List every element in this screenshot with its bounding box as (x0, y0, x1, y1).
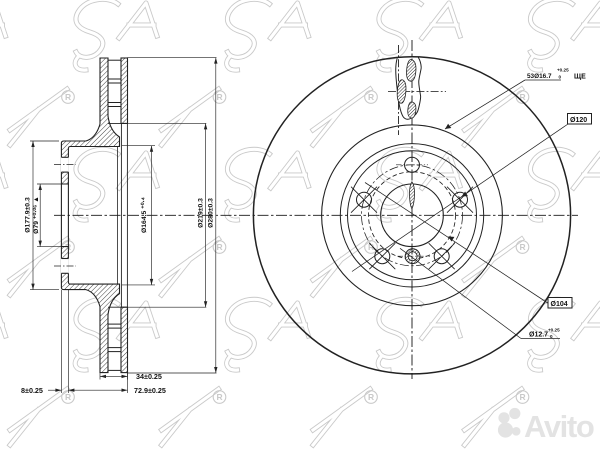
svg-text:+0.25: +0.25 (557, 68, 569, 73)
svg-text:Ø104: Ø104 (551, 301, 568, 308)
svg-text:72.9±0.25: 72.9±0.25 (134, 386, 166, 395)
svg-text:Ø280±0.3: Ø280±0.3 (208, 198, 215, 228)
svg-text:Ø219±0.3: Ø219±0.3 (197, 198, 204, 228)
svg-text:8±0.25: 8±0.25 (21, 386, 43, 395)
svg-text:34±0.25: 34±0.25 (136, 372, 162, 381)
svg-text:ЩЕ: ЩЕ (574, 74, 586, 81)
svg-text:Avito: Avito (524, 409, 594, 444)
svg-text:Ø12.7: Ø12.7 (529, 332, 548, 339)
svg-text:0: 0 (559, 75, 562, 80)
svg-text:Ø120: Ø120 (570, 117, 587, 124)
svg-text:0: 0 (550, 334, 553, 339)
svg-text:+0.25: +0.25 (548, 328, 560, 333)
svg-text:Ø177.9±0.3: Ø177.9±0.3 (25, 197, 32, 233)
svg-text:Ø164.5 ⁺⁰⋅⁴: Ø164.5 ⁺⁰⋅⁴ (140, 197, 148, 233)
svg-text:Ø79 ⁺⁰⋅⁰⁶ ▲: Ø79 ⁺⁰⋅⁰⁶ ▲ (32, 196, 40, 234)
svg-text:53Ø16.7: 53Ø16.7 (527, 73, 552, 80)
